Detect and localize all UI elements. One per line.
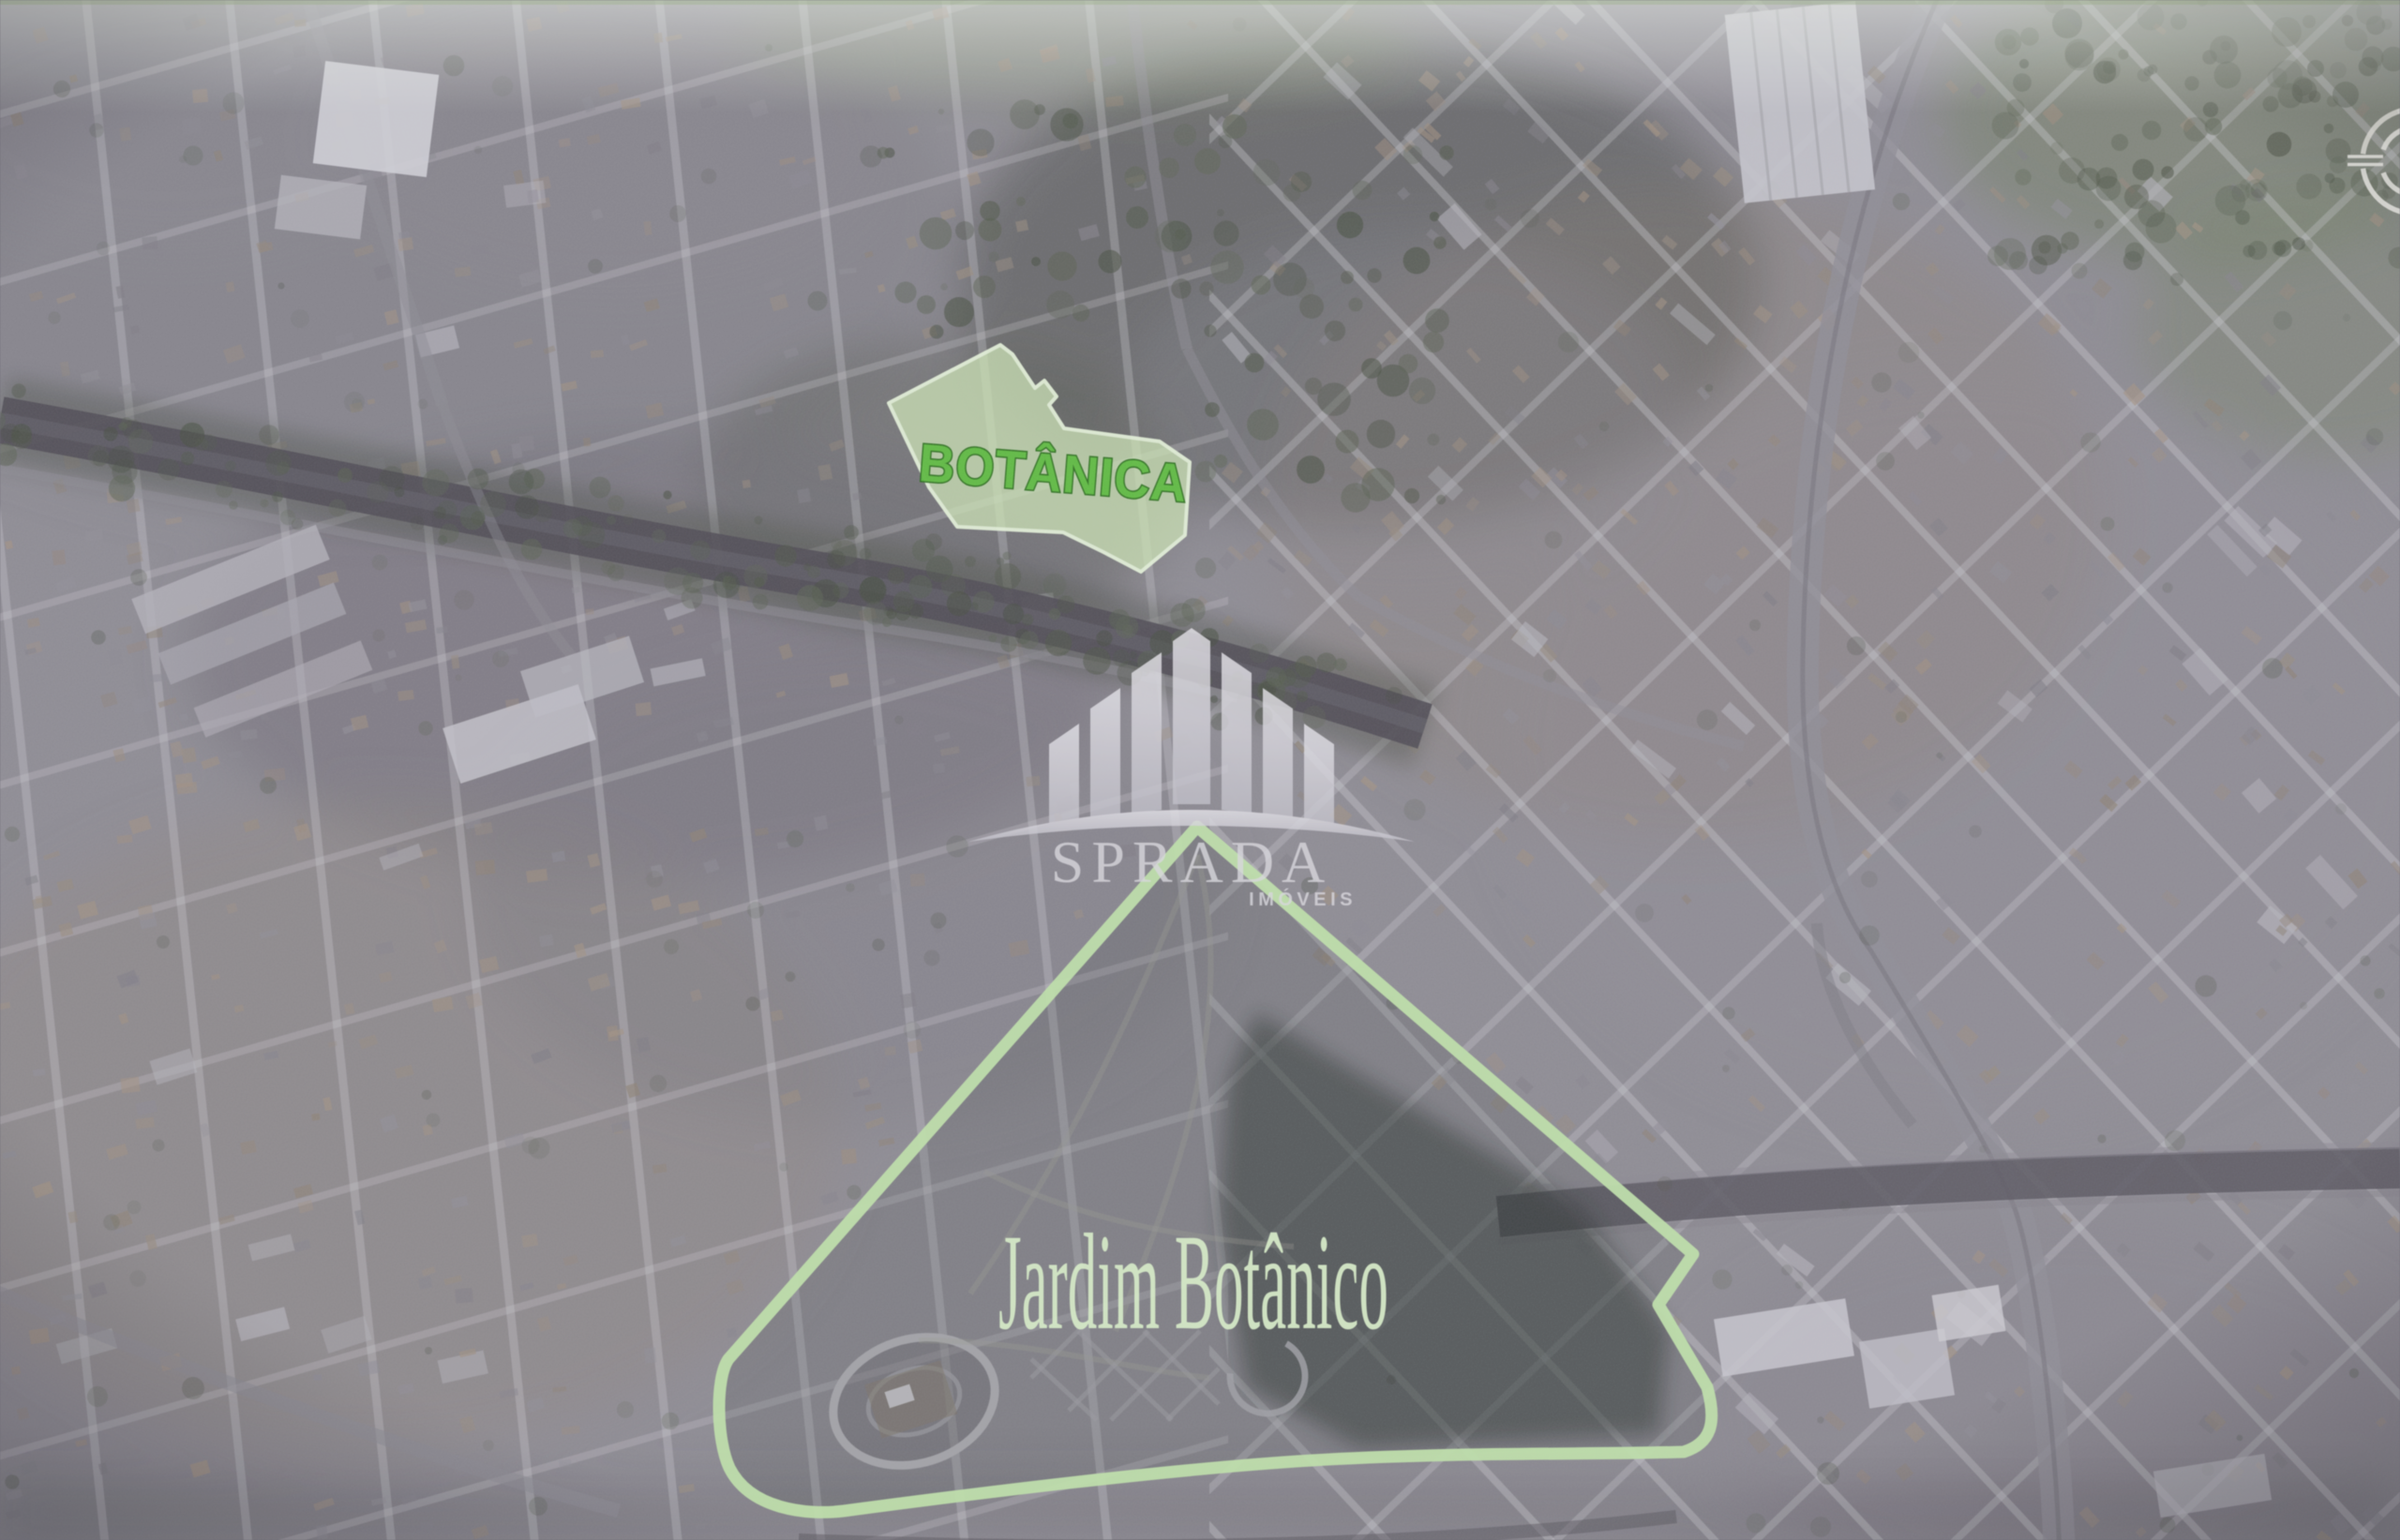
vignette [0, 0, 2400, 1540]
satellite-map-canvas: BOTÂNICA Jardim Botânico [0, 0, 2400, 1540]
satellite-map: BOTÂNICA Jardim Botânico [0, 0, 2400, 1540]
